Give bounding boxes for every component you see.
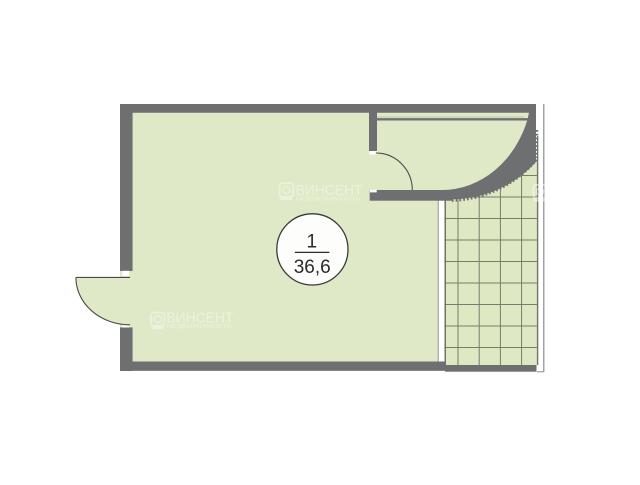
svg-text:1: 1 (307, 232, 318, 253)
svg-text:НЕДВИЖИМОСТЬ: НЕДВИЖИМОСТЬ (296, 197, 362, 203)
svg-text:36,6: 36,6 (294, 257, 331, 278)
svg-text:НЕДВИЖИМОСТЬ: НЕДВИЖИМОСТЬ (549, 197, 615, 203)
svg-text:НЕДВИЖИМОСТЬ: НЕДВИЖИМОСТЬ (167, 324, 233, 330)
